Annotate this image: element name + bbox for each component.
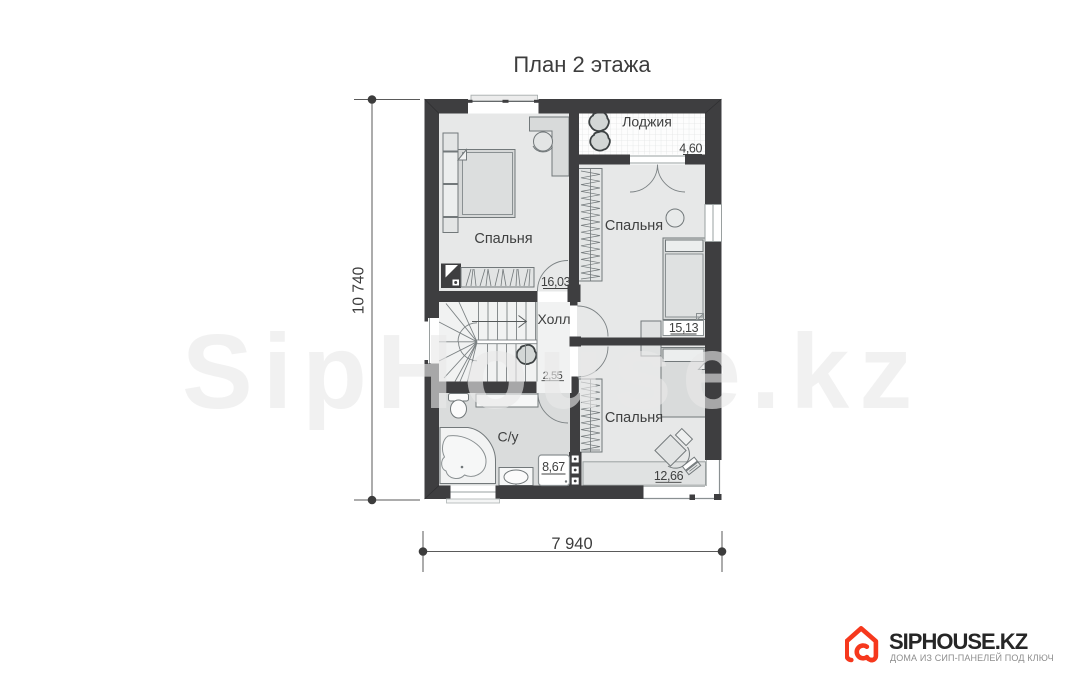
svg-text:4,60: 4,60	[679, 142, 702, 156]
svg-text:16,03: 16,03	[541, 275, 571, 289]
svg-text:Лоджия: Лоджия	[622, 114, 672, 130]
svg-text:Спальня: Спальня	[474, 231, 532, 247]
svg-text:12,66: 12,66	[654, 469, 684, 483]
svg-text:Спальня: Спальня	[605, 218, 663, 234]
svg-text:8,67: 8,67	[542, 460, 565, 474]
svg-text:10 740: 10 740	[351, 266, 368, 314]
svg-text:7 940: 7 940	[551, 535, 592, 553]
